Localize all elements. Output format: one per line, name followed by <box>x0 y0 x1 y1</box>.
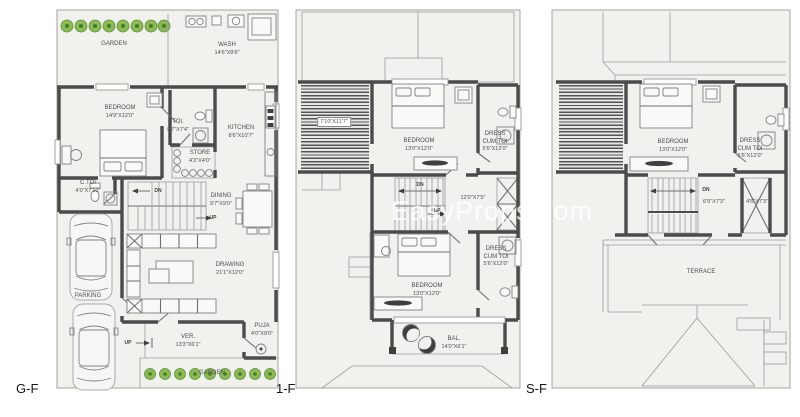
room-label-balcony-1f: BAL.14'0"X6'1" <box>442 336 467 350</box>
watermark-text: EasyProps.com <box>391 196 593 227</box>
room-label-puja: PUJA4'0"X9'0" <box>251 323 273 337</box>
floor-tag-1f: 1-F <box>276 381 296 396</box>
room-label-garden-top: GARDEN <box>101 41 127 49</box>
room-label-bedroom2-1f: BEDROOM13'0"X12'0" <box>411 283 442 297</box>
room-label-wash: WASH14'6"X9'6" <box>215 42 240 56</box>
floor-tag-gf: G-F <box>16 381 38 396</box>
shaft-dim-label-sf: 4'6"X7'3" <box>746 199 768 206</box>
room-label-ver: VER.13'3"X6'1" <box>176 334 201 348</box>
stair-label-dn-gf: DN <box>154 188 161 194</box>
hall-dim-label-sf: 6'9"X7'3" <box>703 199 725 206</box>
room-label-drawing: DRAWING21'1"X12'0" <box>216 262 245 276</box>
gf-car-icon-1 <box>67 214 115 300</box>
gf-plan <box>55 10 279 390</box>
floor-plan-sheet: GARDEN WASH14'6"X9'6" BEDROOM14'9"X12'0"… <box>0 0 800 417</box>
gf-bed-icon <box>100 130 146 176</box>
floor-tag-sf: S-F <box>526 381 547 396</box>
room-label-bedroom-gf: BEDROOM14'9"X12'0" <box>104 105 135 119</box>
stair-label-dn-1f: DN <box>416 182 423 188</box>
room-label-dress2-1f: DRESSCUM TOI5'6"X12'0" <box>483 246 508 268</box>
room-label-bedroom1-1f: BEDROOM13'0"X12'0" <box>403 138 434 152</box>
room-label-dress-sf: DRESSCUM TOI5'6"X12'0" <box>737 138 762 160</box>
stair-label-up-gf: UP <box>210 215 217 221</box>
room-label-kitchen: KITCHEN8'6"X10'7" <box>228 125 254 139</box>
gf-car-icon-2 <box>70 304 118 390</box>
step-label-up-ver: UP <box>125 340 132 346</box>
pergola-deck-1f <box>301 85 369 169</box>
room-label-garden-bottom: GARDEN <box>199 370 225 378</box>
room-label-store: STORE4'3"X4'0" <box>189 150 211 164</box>
room-label-dining: DINING9'7"X9'0" <box>210 193 232 207</box>
stair-label-dn-sf: DN <box>702 187 709 193</box>
room-label-parking: PARKING <box>75 293 102 301</box>
room-label-toi: TOI.9'7"X7'4" <box>167 119 189 133</box>
room-label-dress1-1f: DRESSCUM TOI5'6"X12'0" <box>482 131 507 153</box>
deck-dim-label-1f: 7'10"X11'7" <box>317 117 351 127</box>
room-label-ctoi: C.TOI4'0"X7'10" <box>76 180 101 194</box>
room-label-terrace-sf: TERRACE <box>687 269 716 277</box>
room-label-bedroom-sf: BEDROOM13'0"X12'0" <box>657 139 688 153</box>
pergola-deck-2f <box>559 85 623 169</box>
